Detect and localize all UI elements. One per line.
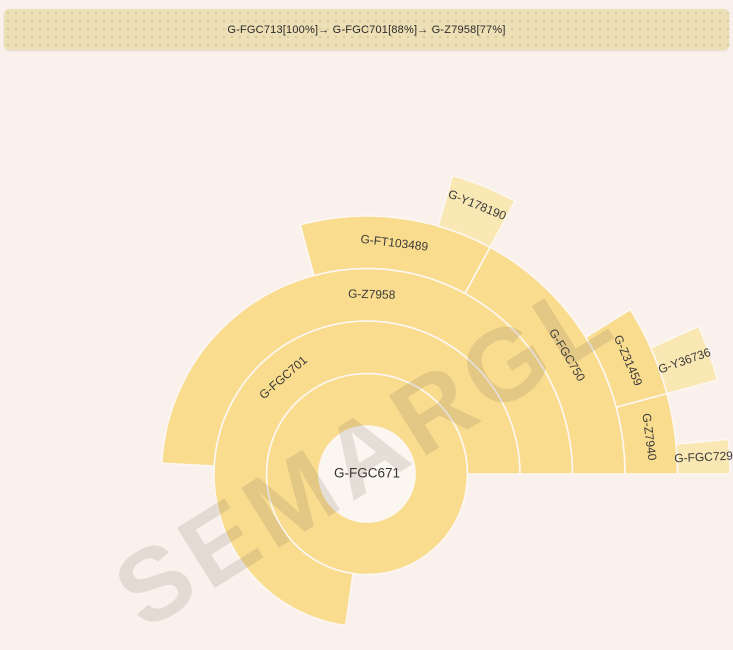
segment-label-G-Z7958: G-Z7958: [348, 287, 396, 302]
center-node-label: G-FGC671: [334, 466, 400, 481]
sunburst-chart: G-FGC701G-Z7958G-FT103489G-FGC750G-Y1781…: [0, 0, 733, 649]
segment-label-G-FGC729: G-FGC729: [674, 449, 733, 466]
